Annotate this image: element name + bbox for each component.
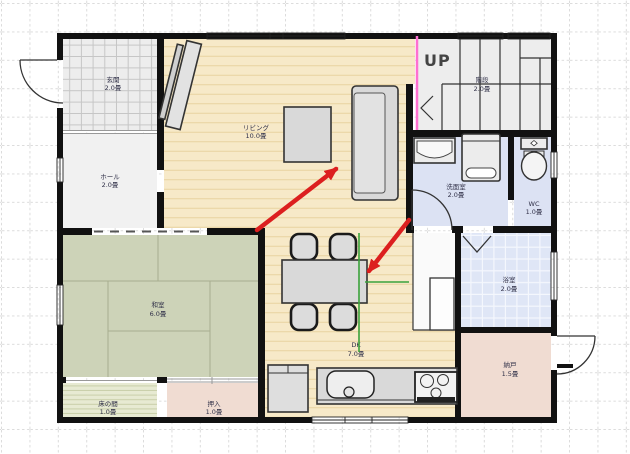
dining-chair[interactable]: [291, 304, 317, 330]
sink-drain: [344, 387, 354, 397]
label-genkan-name: 玄関: [107, 75, 120, 84]
label-nando-size: 1.5畳: [502, 370, 519, 378]
label-bath-name: 浴室: [503, 275, 517, 284]
floorplan-canvas[interactable]: UP: [0, 0, 630, 454]
stairs-up-label: UP: [424, 51, 451, 70]
label-nando-name: 納戸: [504, 360, 518, 369]
label-stairs-size: 2.0畳: [474, 85, 491, 93]
label-genkan-size: 2.0畳: [105, 84, 122, 92]
vanity-sink[interactable]: [414, 138, 455, 163]
toilet[interactable]: [521, 138, 547, 180]
dining-table[interactable]: [282, 260, 367, 303]
refrigerator[interactable]: [268, 365, 308, 412]
label-washitsu-name: 和室: [152, 300, 166, 309]
cooktop: [415, 372, 457, 402]
label-living-size: 10.0畳: [246, 132, 267, 140]
label-tokonoma-size: 1.0畳: [100, 408, 117, 416]
kitchen-counter[interactable]: [317, 368, 457, 404]
label-dk-size: 7.0畳: [348, 350, 365, 358]
label-living-name: リビング: [243, 123, 270, 132]
dining-chair[interactable]: [330, 304, 356, 330]
label-washitsu-size: 6.0畳: [150, 310, 167, 318]
label-wc-name: WC: [529, 200, 540, 208]
label-oshiire-name: 押入: [208, 399, 222, 408]
label-senmen-name: 洗面室: [446, 182, 466, 191]
label-oshiire-size: 1.0畳: [206, 408, 223, 416]
label-hall-size: 2.0畳: [102, 181, 119, 189]
label-stairs-name: 階段: [476, 75, 490, 84]
label-bath-size: 2.0畳: [501, 285, 518, 293]
label-wc-size: 1.0畳: [526, 208, 543, 216]
sofa[interactable]: [352, 86, 398, 200]
label-senmen-size: 2.0畳: [448, 191, 465, 199]
dining-chair[interactable]: [330, 234, 356, 260]
washing-machine[interactable]: [462, 134, 500, 181]
floorplan-page: UP: [0, 0, 630, 454]
label-dk-name: DK: [351, 341, 361, 349]
corridor-shelf[interactable]: [430, 278, 454, 330]
living-table[interactable]: [284, 107, 331, 162]
label-hall-name: ホール: [100, 173, 120, 181]
toilet-bowl: [522, 152, 547, 180]
label-tokonoma-name: 床の間: [98, 399, 118, 408]
dining-chair[interactable]: [291, 234, 317, 260]
